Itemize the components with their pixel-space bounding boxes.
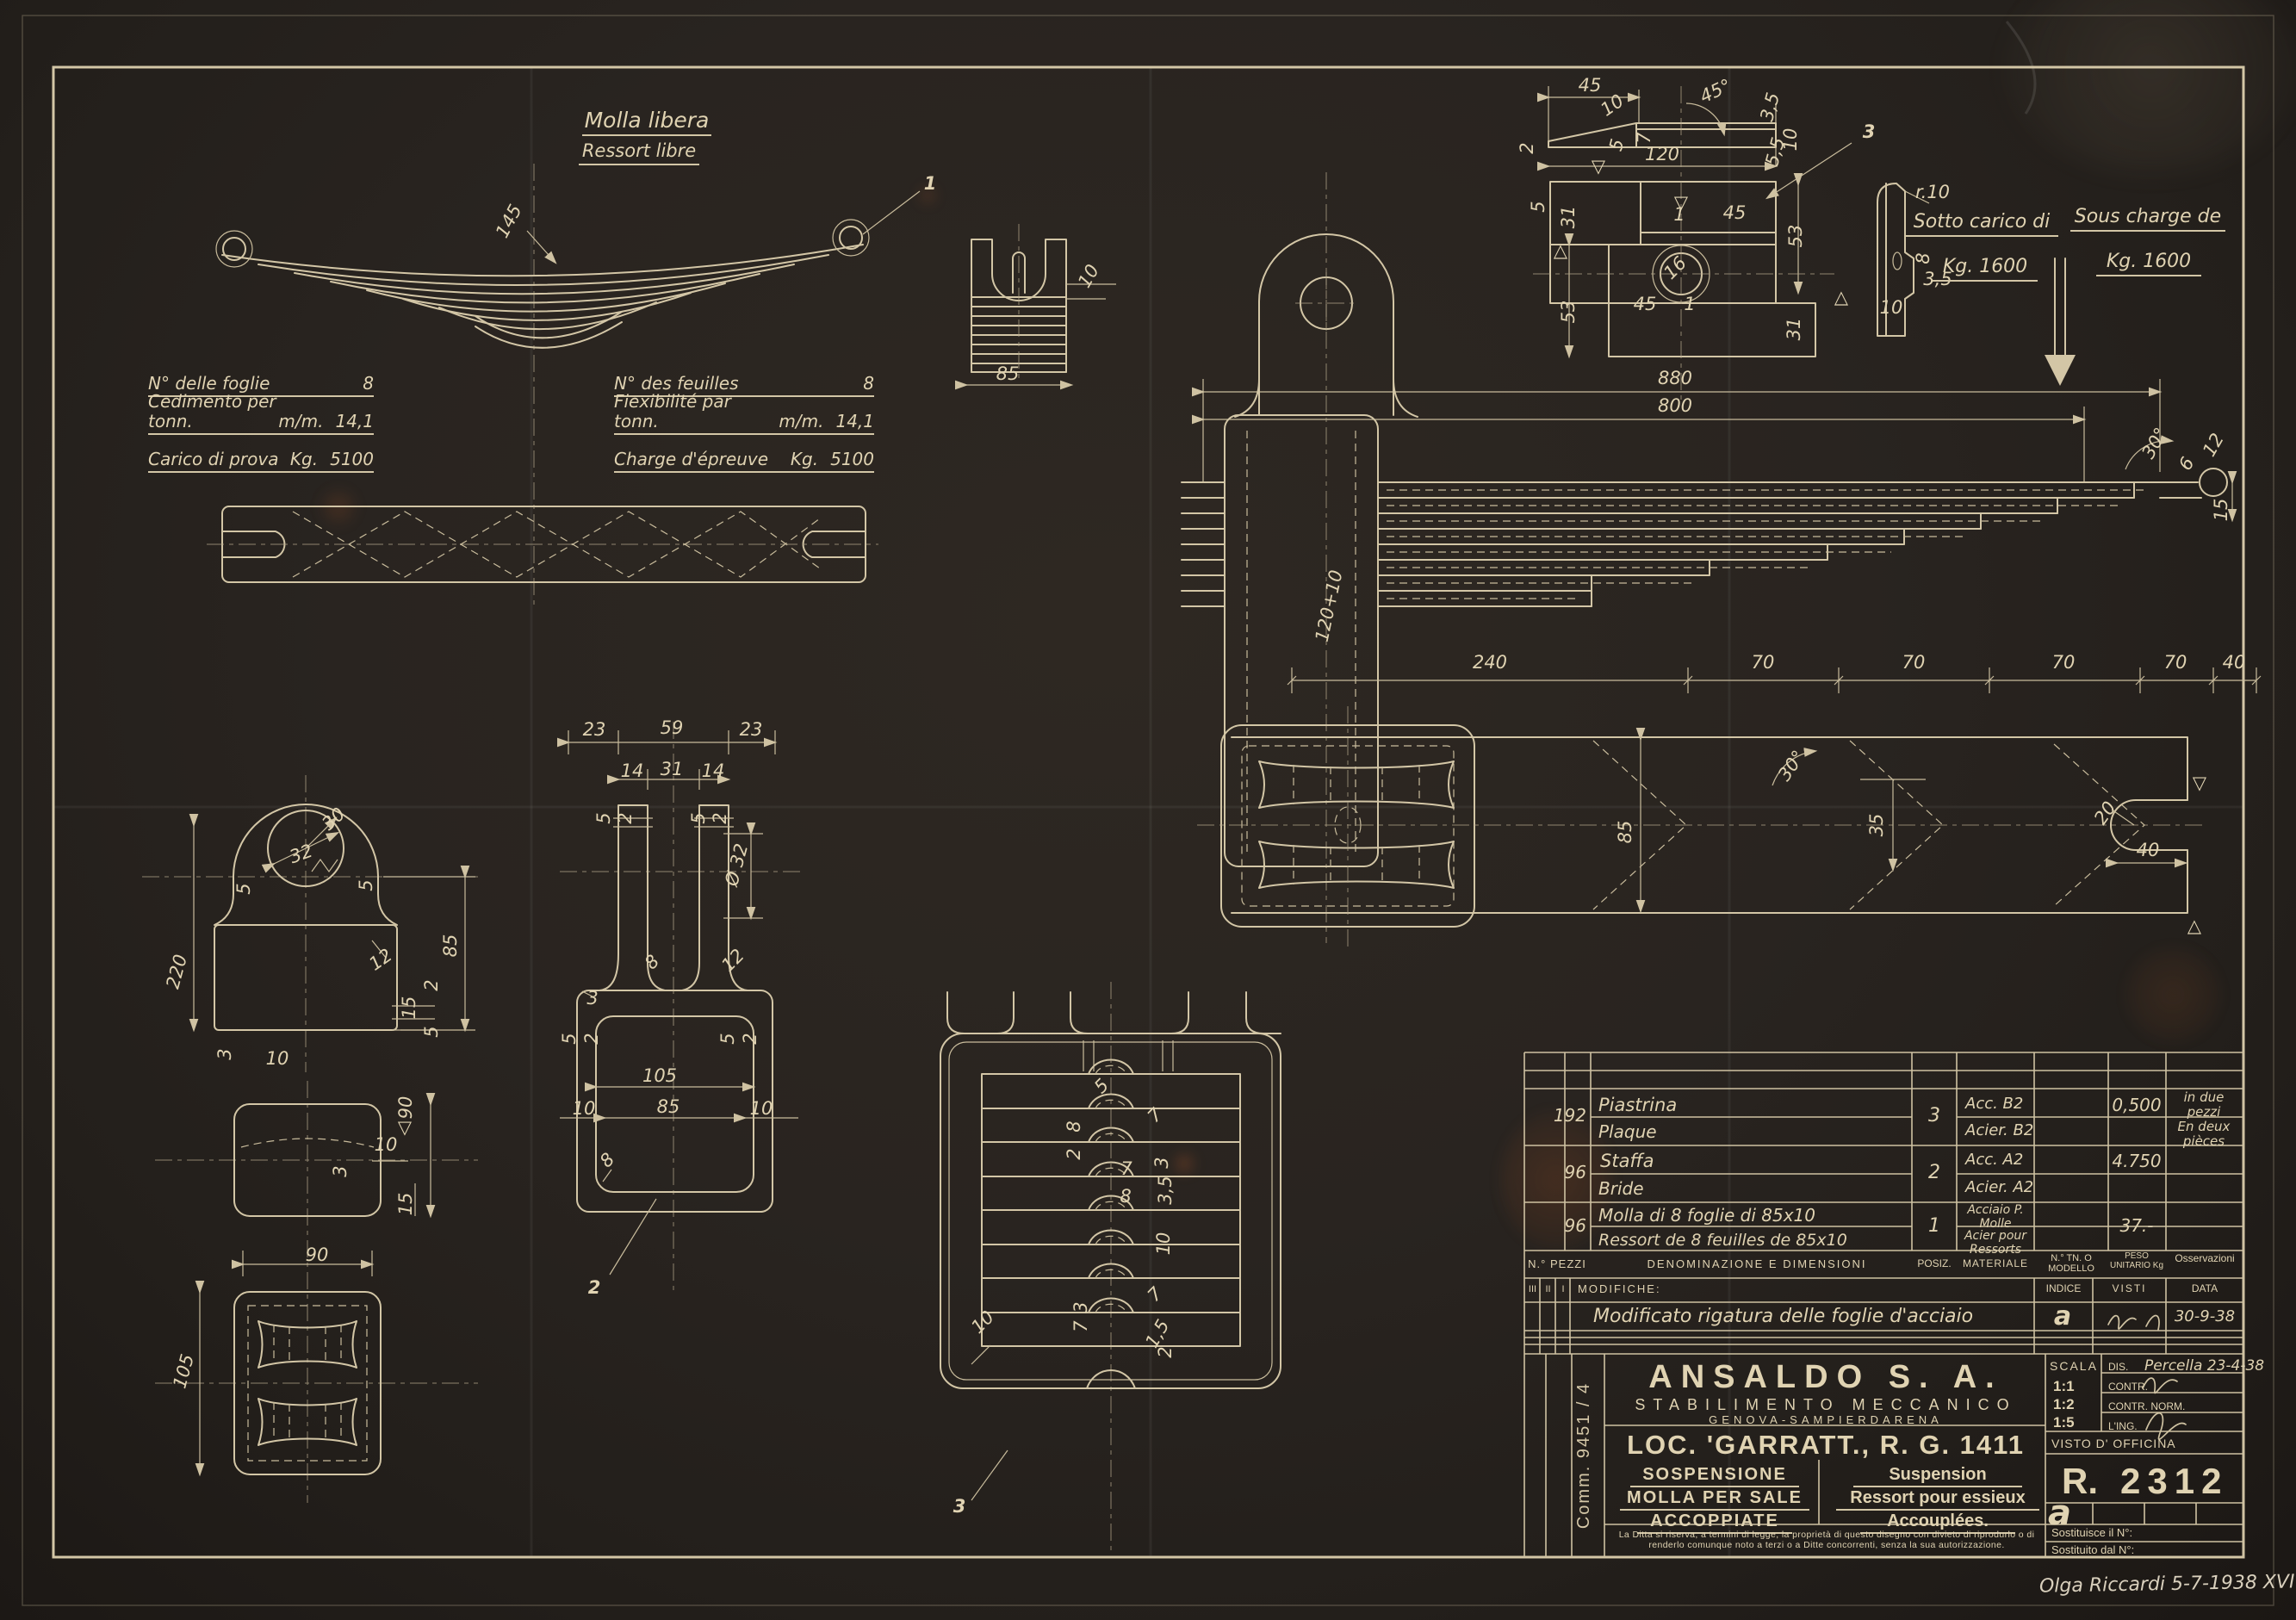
dimension-label: 10: [1880, 297, 1903, 318]
dimension-label: 10: [1597, 90, 1628, 121]
dimension-label: 30°: [1774, 747, 1809, 785]
buckle-front-view: [1225, 415, 1378, 866]
dimension-label: 10: [1074, 261, 1103, 291]
dimension-label: 15: [2211, 499, 2231, 522]
spec-unit: Kg.: [791, 450, 818, 469]
dimension-label: 105: [169, 1352, 198, 1391]
parts-pos: 2: [1917, 1163, 1952, 1184]
company-name: ANSALDO S. A.: [1610, 1359, 2041, 1396]
dimension-label: 2: [581, 1033, 602, 1044]
dimension-label: 7: [1634, 132, 1654, 144]
dimension-label: 8: [596, 1149, 618, 1171]
dimension-label: 85: [1615, 821, 1635, 844]
parts-weight: 0,500: [2110, 1096, 2163, 1114]
dimension-label: 6: [2175, 454, 2198, 475]
dimension-label: 7: [1144, 1103, 1167, 1127]
dimension-label: 3: [1070, 1301, 1091, 1313]
dimension-label: 2: [615, 812, 636, 823]
dimension-label: 90: [395, 1096, 416, 1120]
part-leader-2: 2: [588, 1277, 601, 1298]
contr-label: CONTR.: [2108, 1381, 2148, 1393]
parts-name-fr: Plaque: [1598, 1122, 1657, 1141]
leaf-end-hook: [2200, 469, 2227, 496]
part-leader-3b: 3: [953, 1496, 966, 1517]
dimension-label: 5: [688, 812, 709, 823]
loaded-spring-side-view: [1182, 172, 2261, 943]
dimension-label: 2: [710, 812, 730, 823]
drawing-number: 2312: [2120, 1461, 2228, 1501]
parts-name-it: Piastrina: [1598, 1096, 1677, 1116]
buckle-section-view: [940, 982, 1281, 1550]
eye-end-views: [142, 775, 482, 1503]
scala-label: SCALA: [2050, 1360, 2098, 1374]
dimension-label: 90: [306, 1244, 329, 1265]
dimension-label: 3: [586, 988, 598, 1009]
parts-name-fr: Bride: [1598, 1179, 1644, 1198]
spec-label: Carico di prova: [148, 450, 290, 469]
view-title-fr: Ressort libre: [579, 141, 699, 165]
parts-mat-fr: Acier pour Ressorts: [1958, 1230, 2032, 1257]
dimension-label: 5: [559, 1033, 580, 1044]
dimension-label: 59: [661, 717, 684, 738]
dimension-label: 5: [356, 879, 376, 891]
ing-label: L'ING.: [2108, 1421, 2138, 1432]
dis-signature: Percella 23-4-38: [2144, 1358, 2264, 1375]
dimension-label: 3,5: [1155, 1176, 1176, 1204]
free-spring-plan-view: [207, 506, 878, 582]
spec-label: Cedimento per tonn.: [148, 392, 278, 431]
dimension-label: 20: [2090, 798, 2120, 829]
dimension-label: ▽: [1592, 156, 1606, 177]
dimension-label: 10: [573, 1098, 596, 1119]
dimension-label: 220: [162, 953, 191, 991]
header-materiale: MATERIALE: [1958, 1258, 2032, 1269]
visto-label: VISTO D' OFFICINA: [2051, 1437, 2176, 1451]
commission-number: Comm. 9451 / 4: [1574, 1382, 1593, 1529]
dimension-label: 5,5: [1761, 135, 1789, 168]
dimension-label: 5: [421, 1026, 442, 1037]
spec-value: 14,1: [835, 412, 874, 431]
dimension-label: 70: [2164, 652, 2187, 673]
load-arrow: [2045, 258, 2076, 386]
dimension-label: 40: [2137, 840, 2160, 860]
dimension-label: 8: [641, 951, 663, 973]
dimension-label: 5: [593, 812, 614, 823]
spec-table-fr: N° des feuilles8 Fiexibilité par tonn.m/…: [614, 367, 874, 481]
dimension-label: 16: [1660, 252, 1691, 283]
parts-note-it: in due pezzi: [2170, 1090, 2237, 1120]
dimension-label: 7: [1120, 1158, 1132, 1179]
header-modello: N.° TN. O MODELLO: [2036, 1253, 2107, 1275]
dimension-label: 70: [1752, 652, 1775, 673]
mod-entry-data: 30-9-38: [2167, 1308, 2243, 1325]
sostituisce-label: Sostituisce il N°:: [2051, 1527, 2132, 1540]
mod-col-1: I: [1556, 1284, 1570, 1294]
dimension-label: 10: [750, 1098, 773, 1119]
dimension-label: 85: [440, 934, 461, 958]
parts-note-fr: En deux pièces: [2169, 1120, 2239, 1149]
parts-name-fr: Ressort de 8 feuilles de 85x10: [1598, 1232, 1847, 1250]
scala-1: 1:1: [2053, 1378, 2075, 1394]
parts-mat-it: Acc. A2: [1965, 1151, 2023, 1169]
dimension-label: 10: [967, 1307, 998, 1338]
loaded-spring-plan-view: [1197, 706, 2205, 947]
dimension-label: 14: [702, 760, 725, 781]
mod-data-header: DATA: [2167, 1283, 2243, 1294]
dimension-label: ▽: [398, 1117, 413, 1138]
dimension-label: 15: [395, 1193, 416, 1216]
mod-indice-header: INDICE: [2035, 1283, 2092, 1294]
parts-pos: 1: [1917, 1216, 1952, 1238]
mod-visti-header: VISTI: [2094, 1283, 2165, 1294]
parts-mat-fr: Acier. A2: [1965, 1179, 2033, 1196]
parts-mat-it: Acciaio P. Molle: [1958, 1204, 2032, 1231]
load-value-it: Kg. 1600: [1933, 257, 2038, 282]
dimension-label: 2: [1064, 1148, 1084, 1159]
dimension-label: 2: [421, 979, 442, 990]
dimension-label: 145: [492, 201, 526, 241]
load-label-fr: Sous charge de: [2070, 207, 2225, 232]
dimension-label: 880: [1658, 368, 1692, 388]
dimension-label: 12: [365, 945, 396, 975]
dimension-label: 2: [1155, 1346, 1176, 1357]
dimension-label: 45: [1579, 75, 1602, 96]
dis-label: DIS.: [2108, 1362, 2128, 1373]
dimension-label: 3,5: [1756, 90, 1784, 123]
dimension-label: 53: [1785, 225, 1806, 248]
dimension-label: 5: [1528, 201, 1548, 212]
mod-header: MODIFICHE:: [1578, 1283, 1661, 1296]
part-leader-3: 3: [1863, 121, 1876, 142]
dimension-label: r.10: [1915, 182, 1950, 202]
dimension-label: △: [2187, 916, 2202, 936]
dimension-label: 10: [266, 1048, 289, 1069]
mod-entry: Modificato rigatura delle foglie d'accia…: [1593, 1307, 2024, 1328]
dimension-label: 120+10: [1312, 568, 1347, 644]
mod-col-2: II: [1541, 1284, 1555, 1294]
dimension-label: 8: [1913, 252, 1933, 264]
leader-line-2: [610, 1199, 656, 1275]
dimension-label: 31: [661, 759, 684, 779]
spec-value: 8: [363, 374, 374, 393]
subject-fr-1: Suspension: [1853, 1465, 2022, 1487]
dimension-label: 8: [1120, 1186, 1131, 1207]
part-leader-1: 1: [924, 173, 937, 194]
header-pezzi: N.° PEZZI: [1526, 1258, 1588, 1271]
load-value-fr: Kg. 1600: [2096, 251, 2201, 276]
company-division: STABILIMENTO MECCANICO: [1610, 1396, 2041, 1413]
parts-name-it: Staffa: [1600, 1151, 1654, 1172]
dimension-label: 120: [1645, 144, 1679, 164]
spec-unit: Kg.: [290, 450, 318, 469]
parts-weight: 4.750: [2110, 1151, 2163, 1170]
dimension-label: 70: [2052, 652, 2076, 673]
spec-label: Charge d'épreuve: [614, 450, 791, 469]
dimension-label: △: [1554, 240, 1568, 261]
dimension-label: Ø 32: [721, 841, 752, 889]
dimension-label: 7: [1144, 1282, 1167, 1306]
spec-row: Cedimento per tonn.m/m.14,1: [148, 405, 374, 435]
dimension-label: 10: [375, 1134, 398, 1155]
dimension-label: 7: [1070, 1320, 1091, 1332]
header-osservazioni: Osserva­zioni: [2168, 1253, 2242, 1264]
subject-it-1: SOSPENSIONE: [1630, 1465, 1799, 1487]
legal-notice: La Ditta si riserva, a termini di legge,…: [1612, 1530, 2041, 1551]
dimension-label: 240: [1473, 652, 1507, 673]
dimension-label: 5: [1605, 137, 1629, 153]
spec-unit: m/m.: [779, 412, 823, 431]
mod-entry-indice: a: [2041, 1302, 2084, 1331]
header-denominazione: DENOMINAZIONE E DIMENSIONI: [1619, 1258, 1895, 1271]
spec-label: N° delle foglie: [148, 374, 351, 393]
dimension-label: 35: [1866, 814, 1887, 837]
parts-mat-it: Acc. B2: [1965, 1096, 2023, 1113]
scala-2: 1:2: [2053, 1396, 2075, 1412]
dimension-label: 2: [1517, 142, 1537, 153]
leader-line-1: [863, 191, 920, 234]
dimension-label: 1: [1684, 294, 1695, 314]
subject-fr-2: Ressort pour essieux: [1836, 1488, 2039, 1511]
dimension-label: 23: [583, 719, 606, 740]
dimension-label: 8: [1064, 1120, 1084, 1132]
dimension-label: 30°: [2138, 424, 2171, 462]
dimension-label: 3: [214, 1048, 235, 1059]
dimension-label: 5: [717, 1033, 738, 1044]
dimension-label: ▽: [1674, 192, 1689, 213]
dimension-label: 40: [2223, 652, 2246, 673]
spec-table-it: N° delle foglie8 Cedimento per tonn.m/m.…: [148, 367, 374, 481]
spring-eye-right: [840, 227, 862, 249]
leaf-end-detail: [966, 224, 1116, 385]
dimension-label: 31: [1558, 206, 1579, 229]
dimension-label: 5: [233, 883, 254, 894]
drawing-title: LOC. 'GARRATT., R. G. 1411: [1610, 1431, 2041, 1461]
dimension-label: 800: [1658, 395, 1692, 416]
corner-signature: Olga Riccardi 5-7-1938 XVI: [2039, 1572, 2296, 1598]
parts-qty: 96: [1550, 1216, 1586, 1235]
dimension-label: 14: [621, 760, 644, 781]
spec-value: 14,1: [335, 412, 374, 431]
parts-weight: 37.-: [2110, 1216, 2163, 1235]
subject-it-2: MOLLA PER SALE: [1620, 1488, 1809, 1511]
parts-pos: 3: [1917, 1106, 1952, 1127]
dimension-label: ▽: [2193, 773, 2207, 793]
dimension-label: 3: [1151, 1157, 1172, 1168]
dimension-label: 70: [1902, 652, 1926, 673]
dimension-label: 85: [657, 1096, 680, 1117]
dimension-label: 45: [1634, 294, 1657, 314]
dimension-label: 23: [740, 719, 763, 740]
spec-value: 8: [863, 374, 874, 393]
parts-name-it: Molla di 8 foglie di 85x10: [1598, 1206, 1815, 1225]
spec-unit: m/m.: [278, 412, 323, 431]
spec-row: Fiexibilité par tonn.m/m.14,1: [614, 405, 874, 435]
dimension-label: 2: [740, 1033, 760, 1044]
scala-3: 1:5: [2053, 1414, 2075, 1431]
dimension-label: 3: [330, 1165, 351, 1176]
view-title-it: Molla libera: [582, 109, 711, 136]
dimension-label: 105: [642, 1065, 677, 1086]
load-label-it: Sotto carico di: [1905, 212, 2058, 237]
dimension-label: 85: [996, 363, 1020, 384]
parts-mat-fr: Acier. B2: [1965, 1122, 2033, 1139]
dimension-label: 45: [1723, 202, 1747, 223]
dimension-label: 32: [287, 841, 315, 868]
spec-row: Charge d'épreuveKg.5100: [614, 443, 874, 473]
spec-row: Carico di provaKg.5100: [148, 443, 374, 473]
dimension-label: 12: [717, 945, 748, 976]
company-location: GENOVA-SAMPIERDARENA: [1610, 1414, 2041, 1427]
contr-norm-label: CONTR. NORM.: [2108, 1401, 2185, 1412]
dimension-label: 31: [1784, 318, 1804, 341]
leader-line-3b: [971, 1450, 1008, 1500]
sostituito-label: Sostituito dal N°:: [2051, 1544, 2134, 1557]
header-posiz: POSIZ.: [1913, 1258, 1956, 1269]
spec-label: Fiexibilité par tonn.: [614, 392, 779, 431]
dimension-labels: 14511085451045°3,5120257105,553114553165…: [162, 75, 2245, 1517]
dimension-label: △: [1834, 287, 1849, 307]
parts-qty: 96: [1550, 1163, 1586, 1182]
header-peso: PESO UNITARIO Kg: [2109, 1251, 2164, 1270]
parts-qty: 192: [1550, 1106, 1586, 1125]
dimension-label: 15: [399, 996, 419, 1020]
blueprint-sheet: Comm. 9451 / 4 14511085451045°3,51202571…: [0, 0, 2296, 1620]
spec-label: N° des feuilles: [614, 374, 851, 393]
mod-col-3: III: [1525, 1284, 1540, 1294]
spec-value: 5100: [830, 450, 874, 469]
dimension-label: 10: [1153, 1232, 1174, 1256]
spec-value: 5100: [330, 450, 374, 469]
dimension-label: 53: [1558, 301, 1579, 324]
dimension-label: 12: [2199, 430, 2228, 460]
